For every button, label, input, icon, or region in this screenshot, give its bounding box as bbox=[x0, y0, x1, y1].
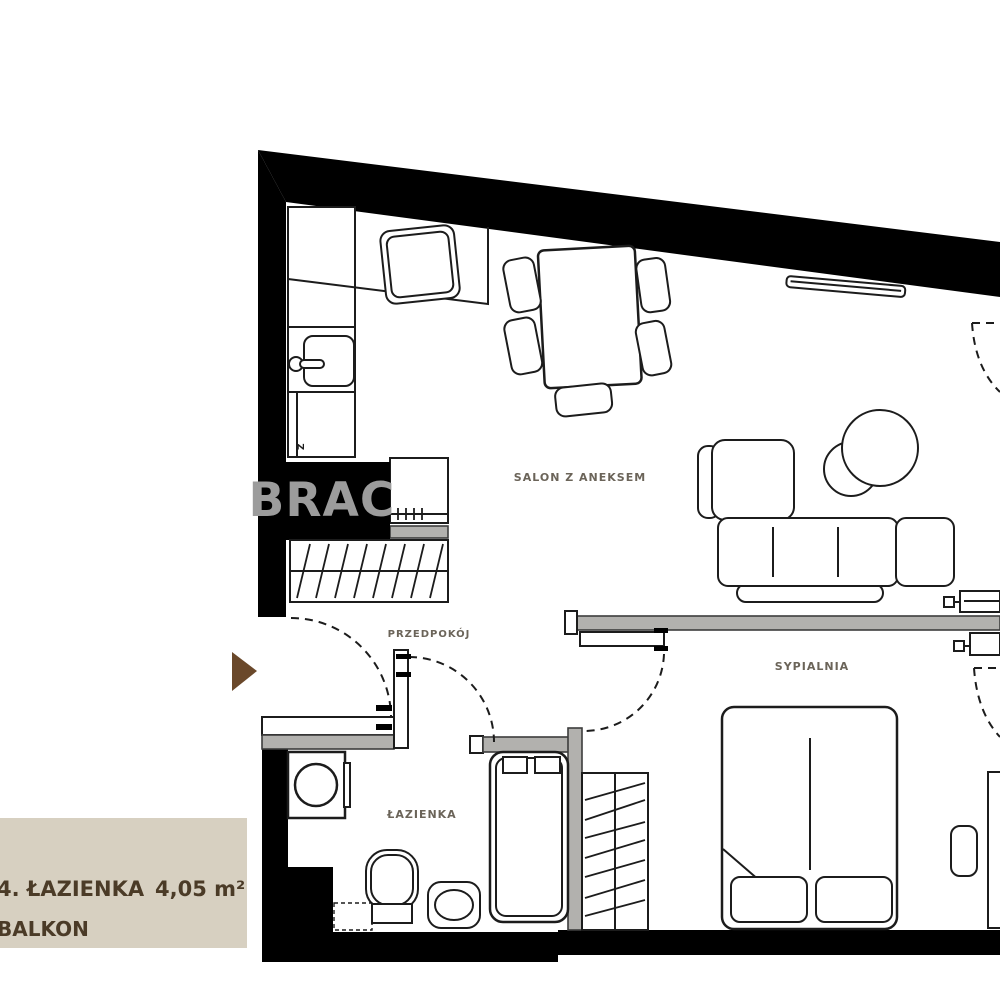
chair bbox=[503, 316, 544, 376]
partition-salon-bedroom bbox=[565, 616, 1000, 630]
kitchen-faucet-arm bbox=[300, 360, 324, 368]
door-arc-bedroom bbox=[584, 654, 664, 731]
bathroom-top-wall bbox=[262, 717, 394, 735]
legend-panel: 4. ŁAZIENKA 4,05 m² BALKON bbox=[0, 818, 247, 948]
door-hinge bbox=[654, 646, 668, 651]
toilet bbox=[366, 850, 418, 910]
door-hinge bbox=[376, 705, 392, 711]
room-label-hallway: PRZEDPOKÓJ bbox=[388, 627, 471, 640]
wall-bottom-bathroom bbox=[262, 932, 558, 962]
door-arc-entrance bbox=[291, 618, 391, 718]
wall-bath-step bbox=[288, 867, 333, 937]
bathroom-top-wall-gray bbox=[262, 735, 394, 749]
chair bbox=[635, 257, 671, 314]
bathtub bbox=[490, 752, 568, 922]
floor-plan-svg: Z BRAC bbox=[0, 0, 1000, 1000]
chair bbox=[554, 383, 613, 418]
balcony-door-salon bbox=[972, 323, 1000, 392]
legend-room-label: 4. ŁAZIENKA bbox=[0, 877, 145, 901]
kitchen-counter-column bbox=[288, 207, 355, 457]
bathtub-faucet bbox=[503, 757, 527, 773]
partition-end-cap-2 bbox=[470, 736, 483, 753]
sofa-arm-right bbox=[896, 518, 954, 586]
door-hinge bbox=[376, 724, 392, 730]
bathtub-faucet bbox=[535, 757, 560, 773]
toilet-base bbox=[372, 904, 412, 923]
legend-balcony-label: BALKON bbox=[0, 917, 89, 941]
door-hinge bbox=[654, 628, 668, 633]
chair bbox=[502, 256, 543, 314]
floor-plan-page: Z BRAC bbox=[0, 0, 1000, 1000]
sofa-chaise bbox=[712, 440, 794, 520]
wardrobe-hallway bbox=[290, 540, 448, 602]
watermark-text: BRAC bbox=[249, 473, 396, 528]
legend-room-area: 4,05 m² bbox=[155, 877, 245, 901]
wall-left-upper bbox=[258, 150, 286, 617]
bathroom-door-leaf bbox=[394, 650, 408, 748]
door-hinge bbox=[396, 654, 411, 659]
balcony-door-bedroom bbox=[974, 668, 1000, 737]
bedroom-left-wall-top bbox=[483, 737, 580, 752]
pillow bbox=[816, 877, 892, 922]
cooktop bbox=[379, 224, 460, 304]
entrance-marker bbox=[232, 652, 257, 691]
coffee-tables bbox=[824, 410, 918, 496]
partition-end-cap bbox=[565, 611, 577, 634]
room-label-salon: SALON Z ANEKSEM bbox=[514, 471, 646, 484]
radiator-bedroom bbox=[954, 633, 1000, 655]
dining-set bbox=[499, 244, 676, 420]
shower-tray-dashed bbox=[334, 903, 372, 930]
bathroom-bedroom-wall bbox=[568, 728, 582, 930]
sofa-seat bbox=[718, 518, 898, 586]
room-label-bathroom: ŁAZIENKA bbox=[386, 808, 456, 821]
wall-bottom-bedroom bbox=[558, 930, 1000, 955]
watermark: BRAC bbox=[249, 462, 396, 540]
door-arc-bathroom bbox=[409, 657, 494, 742]
pillow bbox=[731, 877, 807, 922]
washing-machine-panel bbox=[344, 763, 350, 807]
door-hinge bbox=[396, 672, 411, 677]
bedroom-door-leaf bbox=[580, 632, 664, 646]
dining-table bbox=[538, 246, 642, 389]
dishwasher-label: Z bbox=[297, 443, 307, 450]
wardrobe-right-cut bbox=[988, 772, 1000, 928]
coffee-table-large bbox=[842, 410, 918, 486]
wall-left-lower bbox=[262, 727, 288, 962]
kitchen-cabinet-gray-strip bbox=[390, 526, 448, 538]
bedroom bbox=[582, 707, 1000, 930]
radiator-salon bbox=[944, 591, 1000, 612]
room-label-bedroom: SYPIALNIA bbox=[775, 660, 849, 673]
bedside-table bbox=[951, 826, 977, 876]
